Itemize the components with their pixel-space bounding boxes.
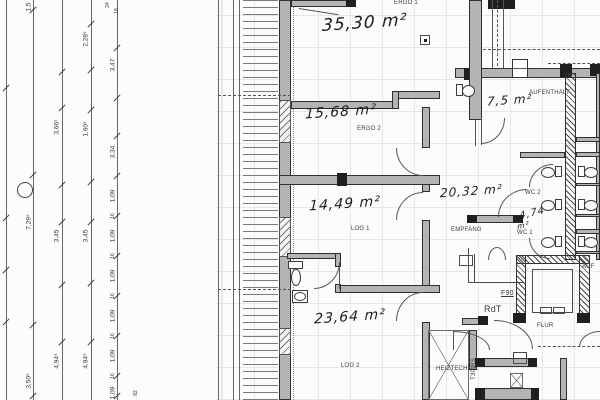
door-label-rdt: RdT bbox=[484, 304, 502, 314]
deck-edge-line bbox=[218, 0, 219, 400]
toilet-stall-right-bowl bbox=[584, 237, 598, 248]
desk-side-unit bbox=[459, 255, 473, 266]
dimension-value: 16 bbox=[110, 293, 116, 299]
elevator-cab-door bbox=[540, 307, 552, 314]
toilet-stall-left-bowl bbox=[541, 237, 555, 248]
deck-rail-line bbox=[239, 0, 240, 400]
dimension-value: 3,47 bbox=[110, 59, 117, 72]
door-leaf bbox=[453, 331, 454, 350]
stall-stub bbox=[576, 229, 600, 234]
window-west-3 bbox=[279, 328, 291, 355]
door-leaf bbox=[339, 262, 340, 289]
dimension-value: 1,09 bbox=[110, 230, 117, 243]
wall-post bbox=[475, 388, 485, 400]
dimension-value: 16 bbox=[110, 213, 116, 219]
dimension-value: 1,09 bbox=[110, 310, 117, 323]
toilet-aufenthalt-bowl bbox=[462, 85, 475, 97]
wall-post bbox=[577, 313, 590, 323]
dimension-value: 3,45 bbox=[54, 230, 61, 243]
bottom-east-wall bbox=[560, 358, 567, 400]
dimension-line bbox=[117, 0, 118, 400]
dimension-value: 2,28⁵ bbox=[83, 31, 90, 46]
toilet-log1-wc-tank bbox=[288, 261, 303, 269]
shaft-wall-line bbox=[503, 0, 504, 68]
dimension-value: 7,29⁵ bbox=[26, 214, 33, 229]
wall-top-ergo1 bbox=[291, 0, 347, 7]
corridor-label-flur: FLUR bbox=[537, 323, 553, 329]
dashed-roof-line bbox=[218, 95, 291, 96]
shaft-dashed-line bbox=[497, 0, 498, 66]
stall-stub bbox=[576, 152, 600, 157]
door-label-f90: F90 bbox=[501, 290, 514, 297]
room-label-log2: LOG 2 bbox=[341, 363, 360, 369]
door-symbol-line bbox=[512, 68, 528, 69]
toilet-stall-left-tank bbox=[555, 166, 562, 177]
floor-plan-sheet: 1,57,29⁵3,50⁵3,66⁵3,454,94⁵2,28⁵1,60⁵3,4… bbox=[0, 0, 600, 400]
wc-room-wall-right bbox=[335, 284, 341, 293]
wall-post bbox=[528, 358, 537, 367]
corridor-west-wall bbox=[422, 107, 430, 148]
deck-rail-line bbox=[233, 0, 234, 400]
deck-boards bbox=[243, 0, 278, 400]
dimension-value: 1,09 bbox=[110, 190, 117, 203]
column-marker-dot bbox=[424, 39, 427, 42]
wall-fixture bbox=[513, 352, 527, 364]
dimension-value: 1,09 bbox=[110, 350, 117, 363]
wc-room-wall-top bbox=[287, 253, 339, 259]
toilet-stall-left-bowl bbox=[541, 167, 555, 178]
dimension-value: 4,94⁵ bbox=[54, 353, 61, 368]
room-label-ergo1: ERGO 1 bbox=[394, 0, 418, 6]
stall-stub bbox=[576, 137, 600, 142]
dimension-line bbox=[33, 0, 34, 400]
wall-post bbox=[467, 215, 477, 223]
toilet-log1-wc-bowl bbox=[291, 269, 301, 286]
room-label-empfang: EMPFANG bbox=[451, 227, 482, 233]
dimension-value: 82 bbox=[133, 390, 139, 396]
dimension-value: 1,60⁵ bbox=[83, 121, 90, 136]
toilet-stall-left-tank bbox=[555, 236, 562, 247]
toilet-stall-left-tank bbox=[555, 199, 562, 210]
dimension-value: 1,09 bbox=[110, 270, 117, 283]
wall-post bbox=[513, 313, 526, 323]
wc2-wall-top bbox=[520, 152, 565, 158]
axis-bubble bbox=[17, 182, 33, 198]
dashed-roof-line bbox=[548, 63, 600, 64]
wall-inner-dotted-line bbox=[293, 0, 294, 400]
elevator-label-auf: AUF bbox=[582, 264, 595, 270]
dimension-value: 3,50⁵ bbox=[26, 373, 33, 388]
dimension-value: 3,45 bbox=[83, 230, 90, 243]
corridor-west-wall bbox=[422, 220, 430, 290]
window-west-1 bbox=[279, 100, 291, 143]
room-label-log1: LOG 1 bbox=[351, 226, 370, 232]
dimension-value: 16 bbox=[110, 333, 116, 339]
stall-stub bbox=[576, 183, 600, 186]
wall-post bbox=[337, 173, 347, 186]
wall-post bbox=[478, 316, 488, 325]
dashed-roof-line bbox=[483, 49, 600, 50]
wc-core-wall bbox=[565, 73, 576, 260]
dimension-value: 3,66⁵ bbox=[54, 119, 61, 134]
dimension-value: 3,34 bbox=[110, 146, 117, 159]
dimension-value: 24 bbox=[105, 2, 111, 8]
stall-stub bbox=[576, 214, 600, 217]
elevator-cab-door bbox=[553, 307, 565, 314]
wall-ergo1-ergo2-jog bbox=[392, 91, 440, 99]
wall-jog-connector bbox=[392, 91, 399, 109]
wall-ergo1-east bbox=[469, 0, 482, 120]
door-leaf bbox=[475, 120, 476, 146]
room-label-wc2: WC 2 bbox=[525, 190, 541, 196]
dimension-value: 16 bbox=[110, 253, 116, 259]
wall-post bbox=[531, 388, 539, 400]
room-label-aufenthalt: AUFENTHALT bbox=[529, 90, 570, 96]
dimension-value: 18 bbox=[114, 8, 120, 14]
door-leaf bbox=[481, 118, 482, 145]
room-label-ergo2: ERGO 2 bbox=[357, 126, 381, 132]
toilet-stall-right-bowl bbox=[584, 167, 598, 178]
shaft-wall-line bbox=[492, 0, 493, 68]
room-label-heiztechnik: HEIZTECHNIK bbox=[436, 366, 478, 372]
toilet-stall-right-bowl bbox=[584, 200, 598, 211]
dimension-value: 4,94⁵ bbox=[83, 353, 90, 368]
window-west-2 bbox=[279, 217, 291, 257]
wall-log1-log2 bbox=[340, 285, 440, 293]
stall-stub bbox=[576, 251, 600, 254]
dashed-roof-line bbox=[218, 289, 291, 290]
dimension-value: 1,5 bbox=[26, 2, 33, 11]
dimension-value: 1,09 bbox=[110, 387, 117, 400]
wall-post bbox=[346, 0, 356, 7]
sink-basin bbox=[294, 292, 306, 301]
dimension-line bbox=[6, 0, 7, 400]
dimension-value: 16 bbox=[110, 373, 116, 379]
wall-ergo2-log1 bbox=[279, 175, 440, 185]
shaft-cross-small bbox=[510, 373, 523, 388]
